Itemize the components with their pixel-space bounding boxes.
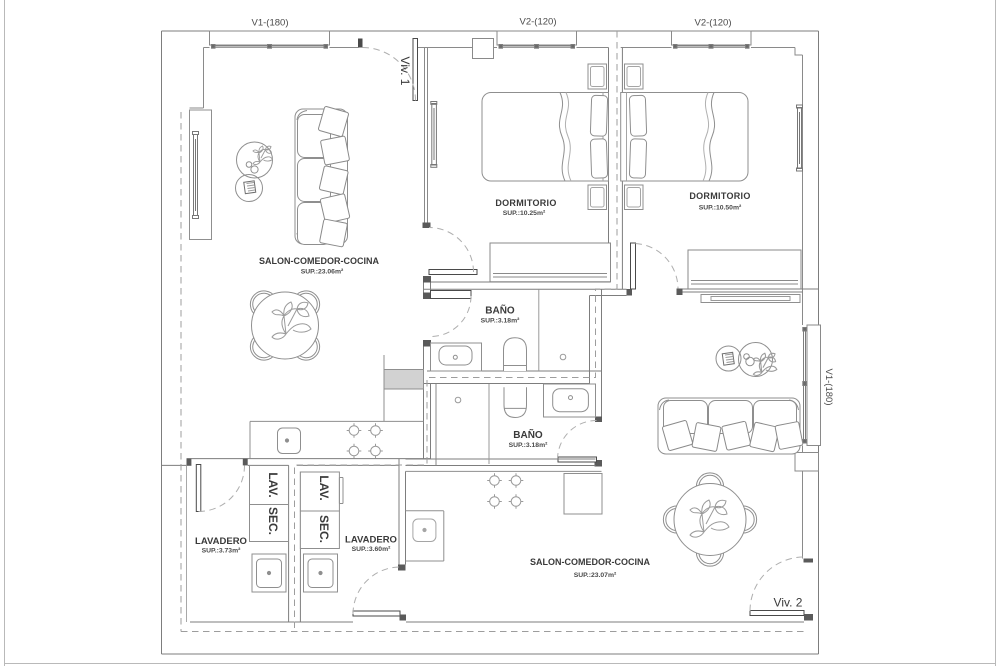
svg-text:LAVADERO: LAVADERO [195,536,247,547]
svg-text:SUP.:3.18m²: SUP.:3.18m² [509,442,549,449]
svg-text:LAV.: LAV. [266,472,280,497]
svg-text:BAÑO: BAÑO [513,428,543,441]
svg-text:Viv. 1: Viv. 1 [398,57,412,86]
svg-text:V2-(120): V2-(120) [695,18,732,29]
svg-text:V2-(120): V2-(120) [520,17,557,28]
svg-text:Viv. 2: Viv. 2 [774,596,803,610]
svg-text:SEC.: SEC. [317,515,331,543]
svg-text:LAV.: LAV. [317,475,331,500]
svg-text:DORMITORIO: DORMITORIO [495,198,556,208]
svg-text:V1-(180): V1-(180) [252,18,289,29]
svg-text:LAVADERO: LAVADERO [345,535,397,546]
svg-text:SUP.:23.07m²: SUP.:23.07m² [574,572,617,579]
svg-text:SUP.:10.25m²: SUP.:10.25m² [503,210,546,217]
svg-text:SUP.:10.50m²: SUP.:10.50m² [699,205,742,212]
svg-text:SUP.:3.18m²: SUP.:3.18m² [481,318,521,325]
svg-text:SUP.:23.06m²: SUP.:23.06m² [301,269,344,276]
svg-text:SALON-COMEDOR-COCINA: SALON-COMEDOR-COCINA [530,557,650,567]
svg-text:SEC.: SEC. [266,507,280,535]
svg-text:SUP.:3.60m²: SUP.:3.60m² [352,546,392,553]
svg-text:DORMITORIO: DORMITORIO [689,191,750,201]
svg-text:SALON-COMEDOR-COCINA: SALON-COMEDOR-COCINA [259,256,379,266]
svg-text:V1-(180): V1-(180) [823,369,834,406]
svg-text:SUP.:3.73m²: SUP.:3.73m² [202,548,242,555]
svg-text:BAÑO: BAÑO [485,304,515,317]
